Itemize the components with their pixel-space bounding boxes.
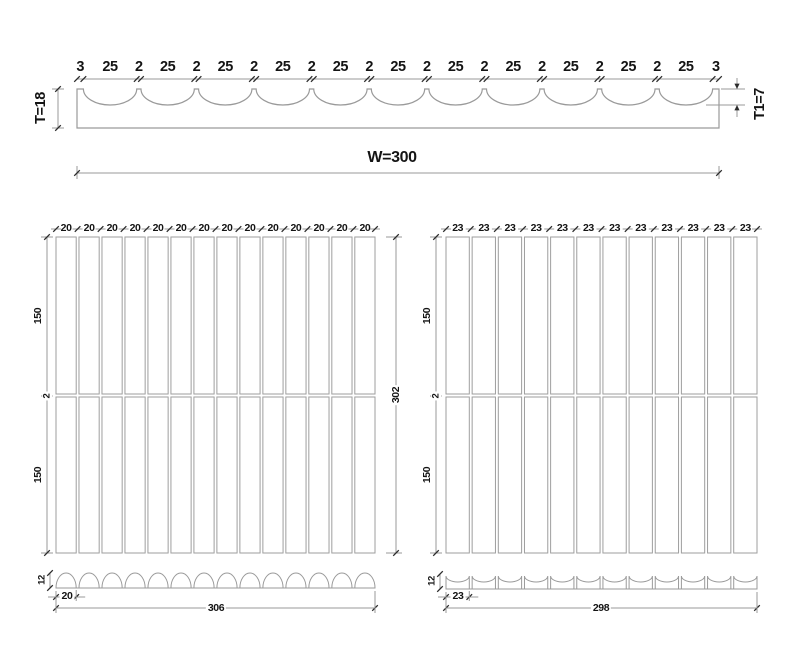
right-row-gap-dim-label: 2 <box>431 392 441 401</box>
section-dim-label: 2 <box>423 60 431 75</box>
edge-thickness-dim-label: T1=7 <box>753 88 768 120</box>
section-dim-label: 2 <box>135 60 143 75</box>
right-row-height-dim-label: 150 <box>422 308 433 324</box>
column-width-label: 23 <box>740 223 751 234</box>
column-width-label: 20 <box>84 223 95 234</box>
column-width-label: 23 <box>557 223 568 234</box>
left-profile-height-dim-label: 12 <box>37 575 47 585</box>
column-width-label: 20 <box>153 223 164 234</box>
column-width-label: 20 <box>222 223 233 234</box>
column-width-label: 23 <box>478 223 489 234</box>
section-dim-label: 25 <box>448 60 463 75</box>
column-width-label: 20 <box>61 223 72 234</box>
column-width-label: 20 <box>199 223 210 234</box>
column-width-label: 23 <box>452 223 463 234</box>
column-width-label: 23 <box>635 223 646 234</box>
thickness-dim-label: T=18 <box>34 92 49 124</box>
left-row-height-dim-label: 150 <box>33 467 44 483</box>
overall-width-dim-label: W=300 <box>367 150 416 166</box>
section-dim-label: 25 <box>621 60 636 75</box>
right-row-height-dim-label: 150 <box>422 467 433 483</box>
section-dim-label: 3 <box>712 60 720 75</box>
column-width-label: 23 <box>531 223 542 234</box>
column-width-label: 20 <box>176 223 187 234</box>
column-width-label: 20 <box>130 223 141 234</box>
section-dim-label: 25 <box>678 60 693 75</box>
column-width-label: 20 <box>245 223 256 234</box>
column-width-label: 20 <box>290 223 301 234</box>
column-width-label: 20 <box>107 223 118 234</box>
section-dim-label: 3 <box>76 60 84 75</box>
section-dim-label: 2 <box>653 60 661 75</box>
dimension-labels-layer: T=18 T1=7 W=300 150 2 150 302 12 20 306 … <box>0 0 800 665</box>
section-dim-label: 25 <box>563 60 578 75</box>
left-row-gap-dim-label: 2 <box>42 392 52 401</box>
column-width-label: 20 <box>268 223 279 234</box>
column-width-label: 23 <box>714 223 725 234</box>
left-profile-width-dim-label: 306 <box>206 603 226 614</box>
left-overall-height-dim-label: 302 <box>391 385 402 405</box>
column-width-label: 23 <box>661 223 672 234</box>
section-dim-label: 2 <box>596 60 604 75</box>
section-dim-label: 25 <box>506 60 521 75</box>
section-dim-label: 2 <box>538 60 546 75</box>
right-profile-width-dim-label: 298 <box>591 603 611 614</box>
column-width-label: 23 <box>583 223 594 234</box>
tile-technical-drawing: T=18 T1=7 W=300 150 2 150 302 12 20 306 … <box>0 0 800 665</box>
right-profile-height-dim-label: 12 <box>427 576 437 586</box>
column-width-label: 20 <box>313 223 324 234</box>
section-dim-label: 25 <box>390 60 405 75</box>
section-dim-label: 25 <box>218 60 233 75</box>
right-profile-unit-dim-label: 23 <box>451 591 466 602</box>
section-dim-label: 25 <box>102 60 117 75</box>
section-dim-label: 2 <box>193 60 201 75</box>
column-width-label: 23 <box>609 223 620 234</box>
column-width-label: 20 <box>336 223 347 234</box>
section-dim-label: 2 <box>481 60 489 75</box>
section-dim-label: 2 <box>250 60 258 75</box>
section-dim-label: 25 <box>160 60 175 75</box>
column-width-label: 23 <box>505 223 516 234</box>
column-width-label: 23 <box>688 223 699 234</box>
left-profile-unit-dim-label: 20 <box>60 591 75 602</box>
column-width-label: 20 <box>359 223 370 234</box>
section-dim-label: 2 <box>365 60 373 75</box>
section-dim-label: 2 <box>308 60 316 75</box>
section-dim-label: 25 <box>275 60 290 75</box>
left-row-height-dim-label: 150 <box>33 308 44 324</box>
section-dim-label: 25 <box>333 60 348 75</box>
